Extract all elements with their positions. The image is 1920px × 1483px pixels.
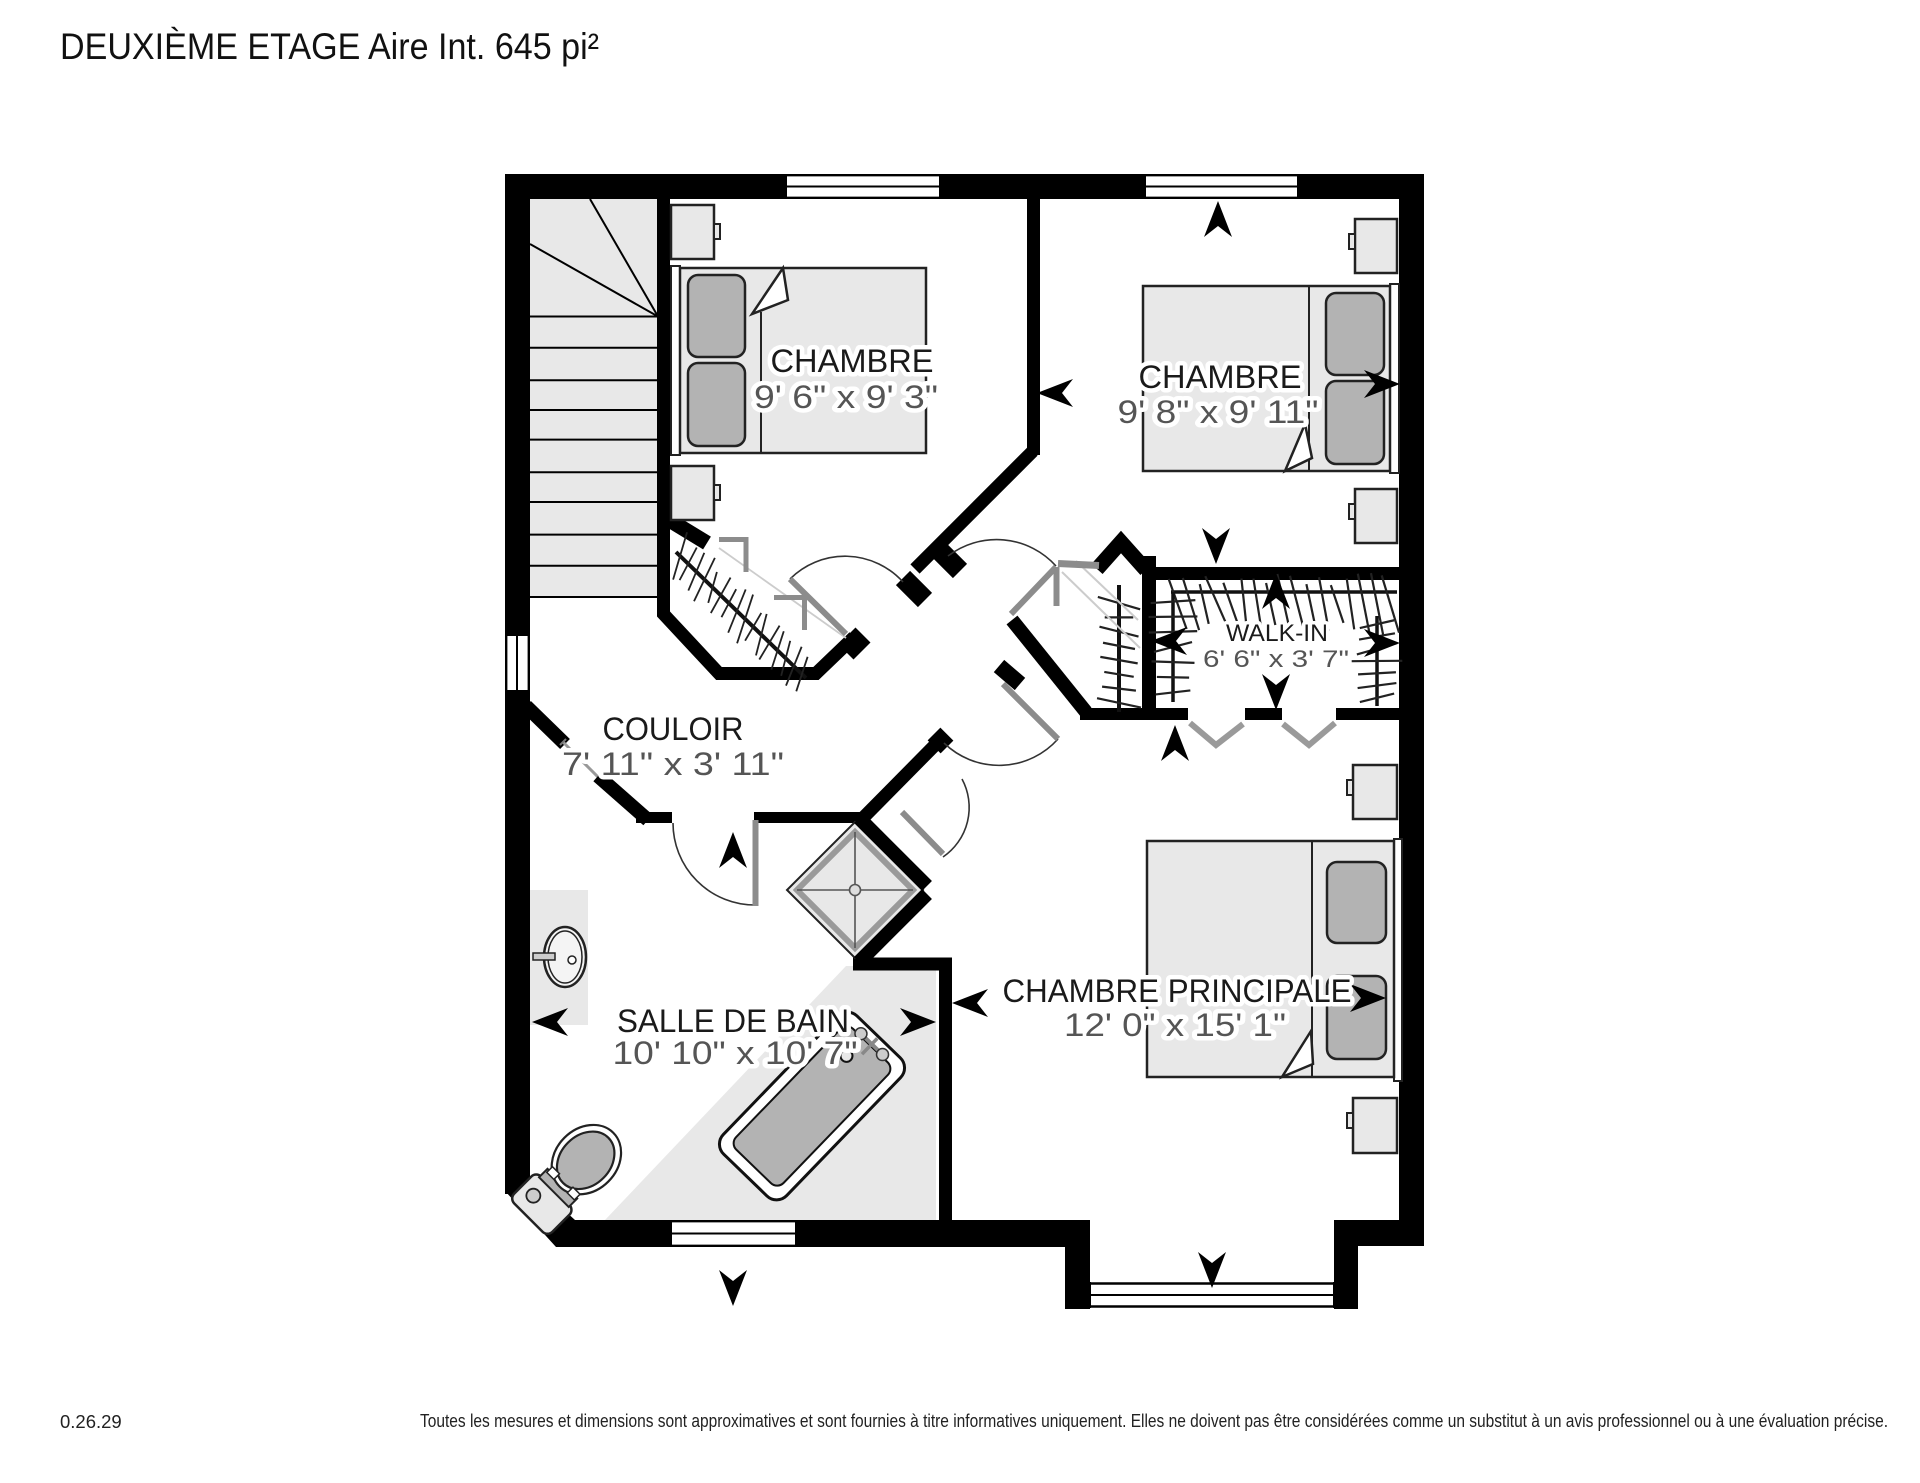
svg-text:Toutes les mesures et dimensio: Toutes les mesures et dimensions sont ap… (420, 1410, 1888, 1431)
svg-text:CHAMBRE: CHAMBRE (1139, 359, 1302, 395)
svg-text:9' 8" x 9' 11": 9' 8" x 9' 11" (1118, 394, 1319, 430)
svg-text:12' 0" x 15' 1": 12' 0" x 15' 1" (1064, 1007, 1286, 1043)
svg-text:6' 6" x 3' 7": 6' 6" x 3' 7" (1203, 646, 1349, 673)
svg-text:CHAMBRE PRINCIPALE: CHAMBRE PRINCIPALE (1003, 973, 1352, 1009)
svg-text:COULOIR: COULOIR (603, 711, 744, 747)
svg-text:DEUXIÈME ETAGE Aire Int. 645 p: DEUXIÈME ETAGE Aire Int. 645 pi² (60, 26, 599, 67)
svg-text:9' 6" x 9' 3": 9' 6" x 9' 3" (754, 379, 938, 415)
svg-text:WALK-IN: WALK-IN (1226, 620, 1328, 647)
svg-text:7' 11" x 3' 11": 7' 11" x 3' 11" (562, 746, 784, 782)
svg-text:10' 10" x 10' 7": 10' 10" x 10' 7" (613, 1035, 858, 1071)
svg-text:0.26.29: 0.26.29 (60, 1411, 122, 1432)
svg-text:SALLE DE BAIN: SALLE DE BAIN (617, 1003, 849, 1039)
svg-text:CHAMBRE: CHAMBRE (771, 343, 934, 379)
